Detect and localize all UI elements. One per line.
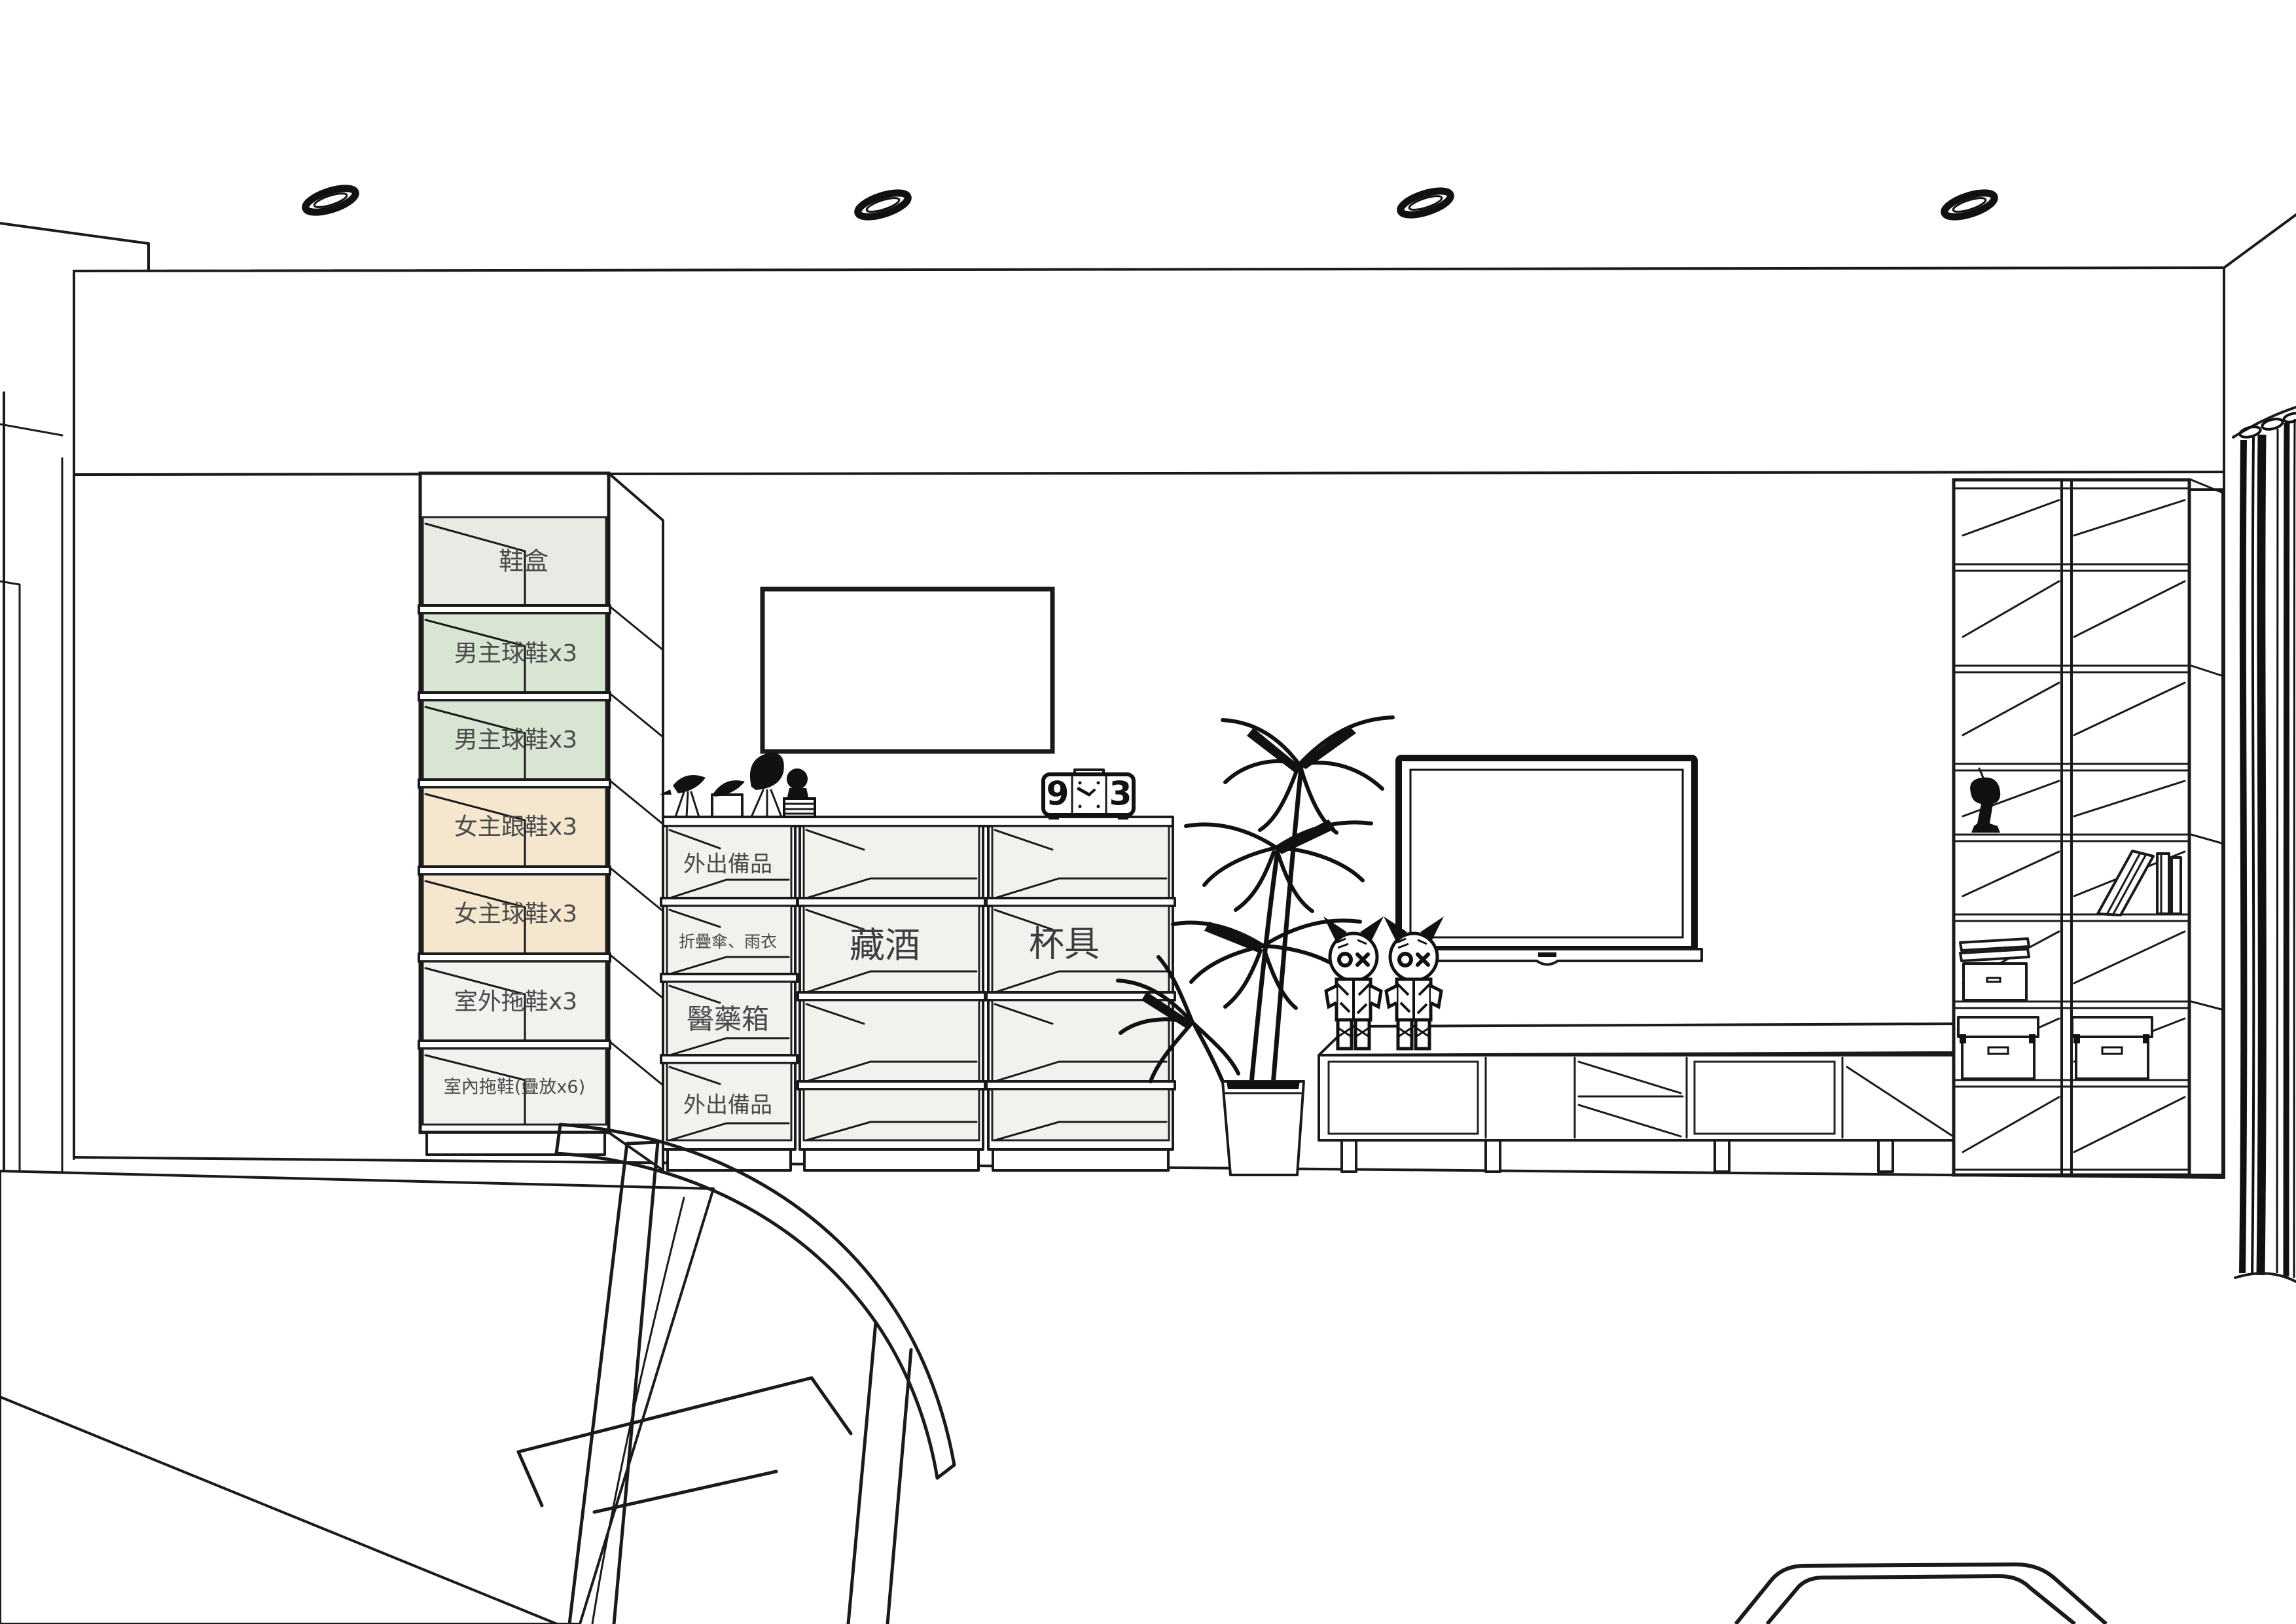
shoe-slot: 鞋盒 xyxy=(423,517,606,605)
console-door xyxy=(1329,1062,1478,1134)
shoe-slot: 女主球鞋x3 xyxy=(423,875,606,954)
right-bookshelf xyxy=(1954,480,2223,1175)
shoe-slot: 男主球鞋x3 xyxy=(423,613,606,693)
entry-row-label: 折疊傘、雨衣 xyxy=(679,932,777,951)
storage-box xyxy=(2072,1017,2152,1079)
entry-unit-left: 外出備品 折疊傘、雨衣 醫藥箱 外出備品 xyxy=(661,826,797,1170)
shoe-slot: 男主球鞋x3 xyxy=(423,700,606,780)
shoe-cabinet: 鞋盒 男主球鞋x3 男主球鞋x3 女主跟鞋x3 女主球鞋x3 xyxy=(419,473,663,1170)
shoe-slot-label: 鞋盒 xyxy=(499,547,548,576)
left-door xyxy=(0,393,62,1180)
top-decor-birds xyxy=(660,753,815,817)
entry-unit-wine: 藏酒 xyxy=(798,826,985,1170)
console-leg xyxy=(1715,1140,1729,1172)
recessed-lights xyxy=(303,183,1998,221)
entry-shelves: 外出備品 折疊傘、雨衣 醫藥箱 外出備品 xyxy=(661,817,1175,1170)
shoe-slot: 室外拖鞋x3 xyxy=(423,962,606,1041)
storage-box xyxy=(1958,1017,2038,1079)
wall-frame xyxy=(762,589,1052,751)
bookshelf-side xyxy=(2189,490,2223,1175)
bird-figurine-icon xyxy=(660,775,706,817)
console-leg xyxy=(1486,1140,1500,1172)
tv xyxy=(1393,758,1702,965)
entry-row-label: 外出備品 xyxy=(683,1092,772,1119)
console-leg xyxy=(1878,1140,1893,1172)
shoe-slot-label: 男主球鞋x3 xyxy=(454,640,577,667)
interior-rendering: 鞋盒 男主球鞋x3 男主球鞋x3 女主跟鞋x3 女主球鞋x3 xyxy=(0,0,2296,1624)
bird-on-pedestal-icon xyxy=(712,780,745,817)
shoe-slot-label: 女主球鞋x3 xyxy=(454,901,577,928)
entry-row-label: 外出備品 xyxy=(683,852,772,878)
shoe-slot: 女主跟鞋x3 xyxy=(423,787,606,867)
shoe-cabinet-side xyxy=(609,473,663,1170)
shoe-slot-label: 男主球鞋x3 xyxy=(454,727,577,753)
console-door xyxy=(1695,1062,1835,1134)
coffee-table xyxy=(1736,1564,2106,1624)
shoe-cabinet-base xyxy=(427,1132,605,1155)
downlight-icon xyxy=(1398,186,1454,219)
planter-pot xyxy=(1223,1081,1304,1175)
tv-logo xyxy=(1538,952,1556,957)
shoe-slot-label: 女主跟鞋x3 xyxy=(454,814,577,840)
cup-label: 杯具 xyxy=(1029,924,1100,965)
folded-stack xyxy=(1960,939,2029,1000)
clock-hour: 9 xyxy=(1047,775,1069,813)
shoe-slot-label: 室內拖鞋(疊放x6) xyxy=(444,1077,585,1098)
curtain xyxy=(2233,407,2296,1283)
shoe-slot: 室內拖鞋(疊放x6) xyxy=(423,1049,606,1125)
entry-row-label: 醫藥箱 xyxy=(687,1003,769,1036)
shoe-slot-label: 室外拖鞋x3 xyxy=(454,988,577,1015)
mini-figure-on-chair-icon xyxy=(784,768,815,817)
flip-clock: 9 3 xyxy=(1043,770,1134,820)
downlight-icon xyxy=(303,183,359,217)
wine-label: 藏酒 xyxy=(850,925,920,966)
dining-table xyxy=(0,1171,713,1624)
downlight-icon xyxy=(1942,188,1998,221)
entry-shelf-top-board xyxy=(663,817,1173,826)
downlight-icon xyxy=(855,188,911,221)
bird-figurine-icon xyxy=(750,753,784,817)
clock-minute: 3 xyxy=(1109,775,1132,813)
console-leg xyxy=(1342,1140,1356,1172)
scene-drawing: 鞋盒 男主球鞋x3 男主球鞋x3 女主跟鞋x3 女主球鞋x3 xyxy=(0,0,2296,1624)
